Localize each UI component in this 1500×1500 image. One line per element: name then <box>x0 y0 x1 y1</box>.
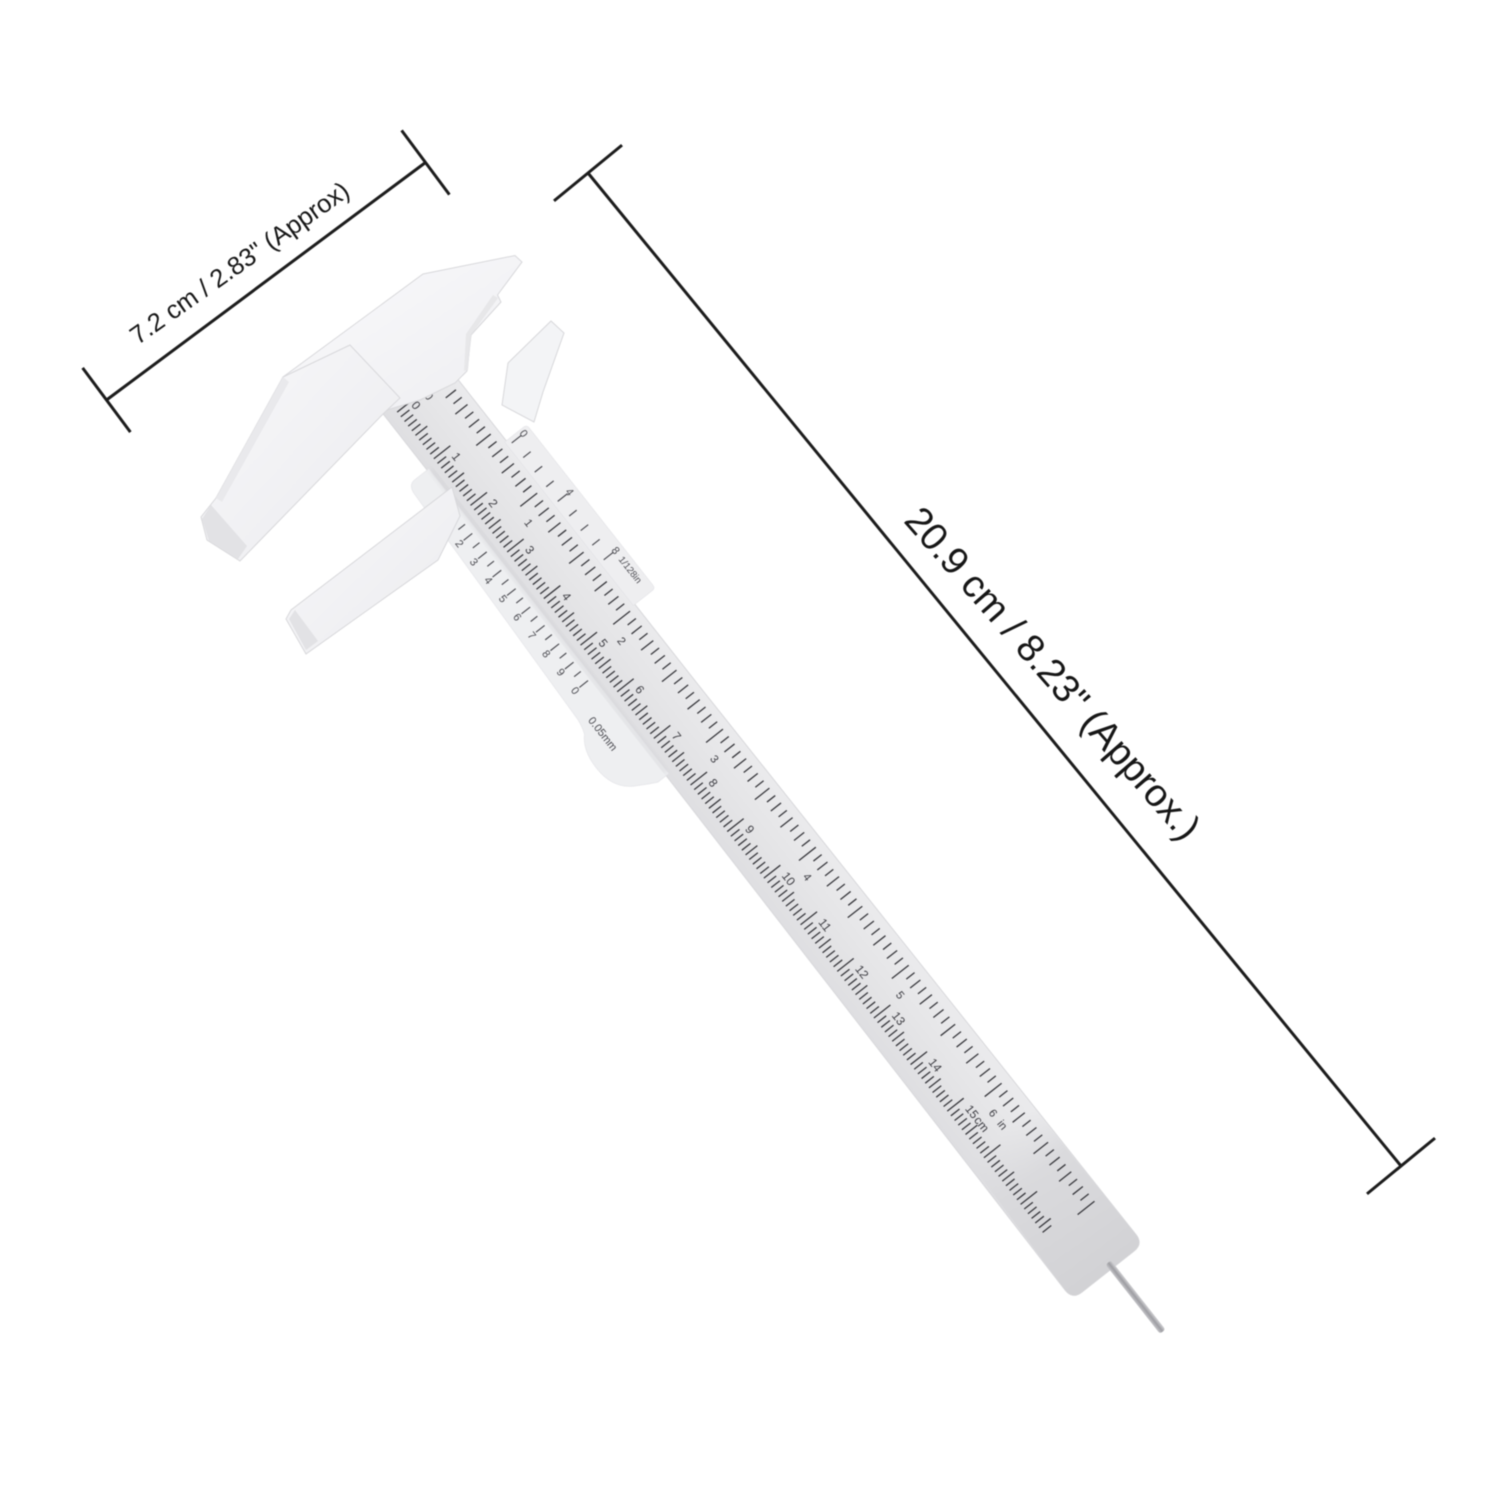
svg-text:7.2 cm / 2.83" (Approx): 7.2 cm / 2.83" (Approx) <box>125 177 355 351</box>
svg-text:20.9 cm / 8.23" (Approx.): 20.9 cm / 8.23" (Approx.) <box>896 499 1209 849</box>
